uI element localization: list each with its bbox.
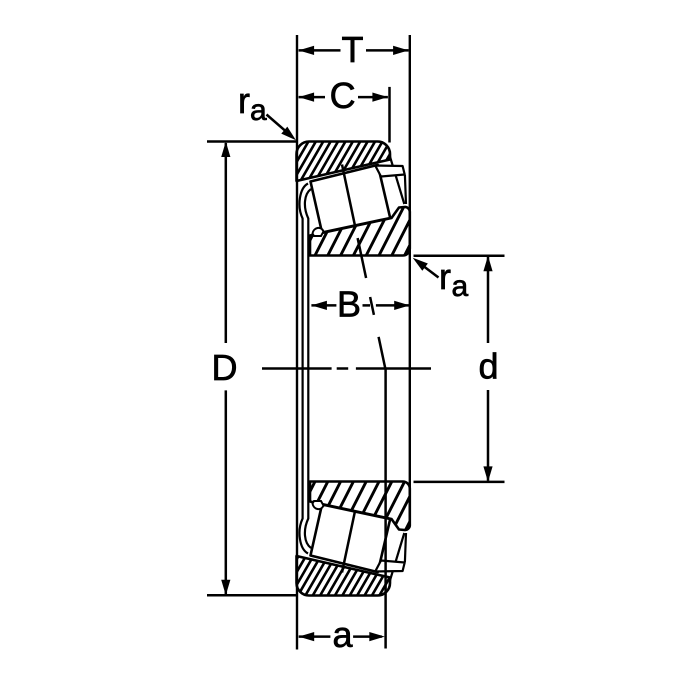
svg-text:C: C	[330, 75, 356, 116]
svg-text:a: a	[452, 270, 469, 303]
svg-text:B: B	[337, 283, 361, 324]
svg-text:r: r	[238, 80, 250, 121]
svg-text:T: T	[342, 29, 364, 70]
svg-text:a: a	[250, 94, 267, 127]
svg-text:a: a	[332, 614, 353, 655]
svg-text:d: d	[478, 346, 498, 387]
svg-text:r: r	[439, 256, 451, 297]
svg-text:D: D	[212, 347, 238, 388]
